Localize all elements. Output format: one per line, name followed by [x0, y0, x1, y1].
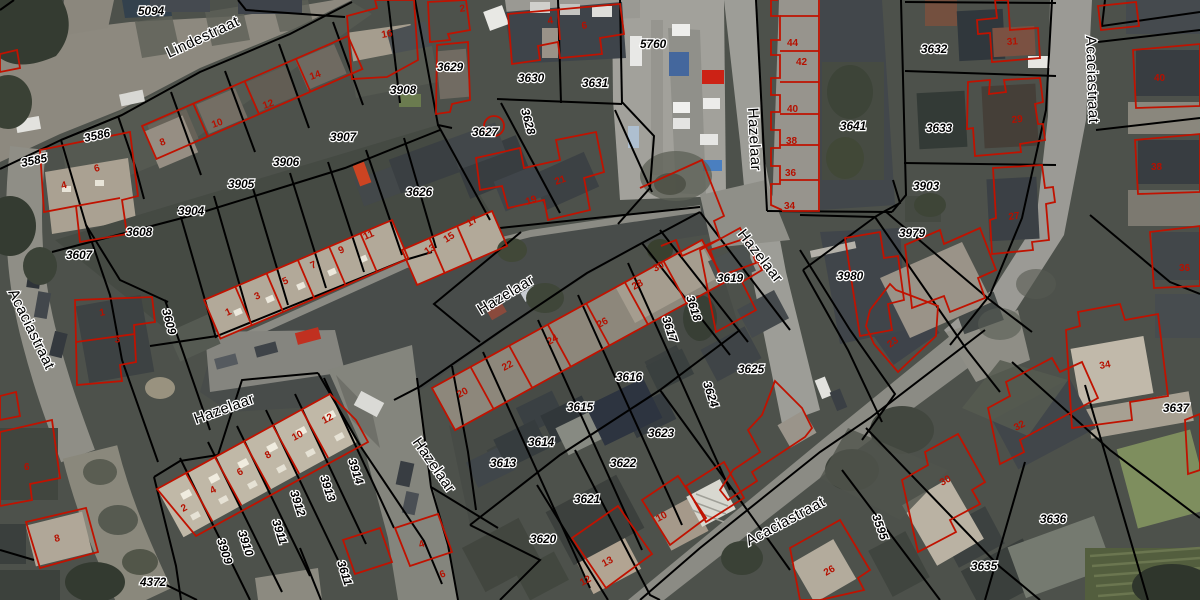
svg-text:40: 40 [787, 104, 799, 115]
svg-text:3616: 3616 [616, 370, 643, 384]
svg-text:6: 6 [24, 462, 30, 473]
svg-text:3636: 3636 [1040, 512, 1067, 526]
svg-text:3626: 3626 [406, 185, 433, 199]
svg-text:3623: 3623 [648, 426, 675, 440]
svg-text:5760: 5760 [640, 37, 667, 51]
svg-text:31: 31 [1006, 36, 1018, 48]
svg-text:3622: 3622 [610, 456, 637, 470]
svg-text:Acaciastraat: Acaciastraat [1082, 36, 1102, 124]
svg-text:3637: 3637 [1163, 401, 1191, 415]
svg-text:36: 36 [1179, 263, 1191, 274]
svg-text:3619: 3619 [717, 271, 744, 285]
svg-text:38: 38 [786, 136, 798, 147]
svg-text:3979: 3979 [899, 226, 926, 240]
svg-text:38: 38 [1151, 162, 1163, 173]
svg-text:3629: 3629 [437, 60, 464, 74]
svg-text:3903: 3903 [913, 179, 940, 193]
svg-text:3632: 3632 [921, 42, 948, 56]
svg-text:3907: 3907 [330, 130, 358, 144]
svg-text:3904: 3904 [178, 204, 205, 218]
svg-text:Hazelaar: Hazelaar [744, 107, 764, 171]
svg-text:3905: 3905 [228, 177, 255, 191]
svg-text:40: 40 [1154, 73, 1166, 84]
svg-text:3641: 3641 [840, 119, 866, 133]
svg-text:42: 42 [796, 57, 808, 68]
svg-text:3633: 3633 [926, 121, 953, 135]
svg-text:29: 29 [1011, 114, 1024, 126]
svg-text:3906: 3906 [273, 155, 300, 169]
svg-text:4372: 4372 [139, 575, 167, 589]
svg-text:3613: 3613 [490, 456, 517, 470]
svg-text:34: 34 [784, 201, 796, 212]
svg-text:3631: 3631 [582, 76, 608, 90]
svg-text:27: 27 [1008, 210, 1021, 223]
svg-text:3614: 3614 [528, 435, 555, 449]
svg-text:3615: 3615 [567, 400, 594, 414]
svg-text:44: 44 [787, 38, 799, 49]
svg-text:3627: 3627 [472, 125, 500, 139]
svg-text:3908: 3908 [390, 83, 417, 97]
svg-text:3630: 3630 [518, 71, 545, 85]
svg-text:3621: 3621 [574, 492, 600, 506]
svg-text:36: 36 [785, 168, 797, 179]
svg-text:3980: 3980 [837, 269, 864, 283]
svg-text:3620: 3620 [530, 532, 557, 546]
svg-text:5094: 5094 [138, 4, 165, 18]
svg-text:3607: 3607 [66, 248, 94, 262]
svg-text:3625: 3625 [738, 362, 765, 376]
svg-text:3608: 3608 [126, 225, 153, 239]
svg-text:3635: 3635 [971, 559, 998, 573]
